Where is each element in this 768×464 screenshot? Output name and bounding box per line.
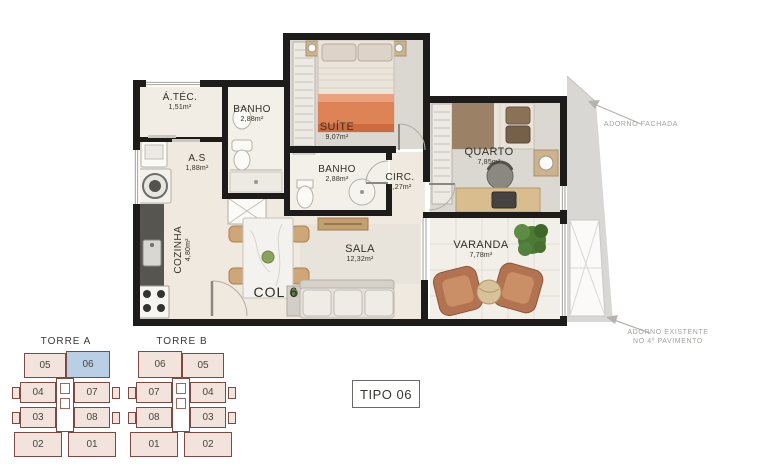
- room-area-suite: 9,07m²: [307, 134, 367, 142]
- room-name-atec: Á.TÉC.: [150, 92, 210, 104]
- floorplan-image: Á.TÉC. 1,51m² BANHO 2,88m² SUÍTE 9,07m² …: [0, 0, 768, 464]
- tower-a-unit-04: 04: [20, 382, 56, 403]
- room-name-varanda: VARANDA: [444, 239, 518, 252]
- tower-a-step: [12, 412, 20, 424]
- room-name-banho1: BANHO: [222, 104, 282, 116]
- room-label-cozinha: COZINHA 4,80m²: [173, 213, 193, 287]
- tower-a-unit-01: 01: [68, 432, 116, 457]
- room-label-banho1: BANHO 2,88m²: [222, 104, 282, 124]
- tower-b-unit-08: 08: [136, 407, 172, 428]
- tower-b-unit-01: 01: [130, 432, 178, 457]
- tower-a-step: [12, 387, 20, 399]
- tower-a-unit-02: 02: [14, 432, 62, 457]
- room-area-varanda: 7,78m²: [444, 252, 518, 260]
- tower-a-diagram: TORRE A 05 06 04 07 03 08 02 01: [10, 336, 122, 461]
- tower-a-body: 05 06 04 07 03 08 02 01: [10, 349, 122, 461]
- tower-a-unit-03: 03: [20, 407, 56, 428]
- room-name-suite: SUÍTE: [307, 121, 367, 134]
- room-area-atec: 1,51m²: [150, 104, 210, 112]
- room-label-atec: Á.TÉC. 1,51m²: [150, 92, 210, 112]
- laundry-fixtures: [139, 141, 171, 203]
- room-area-circ: 1,27m²: [376, 184, 424, 192]
- tower-b-unit-06: 06: [138, 351, 182, 378]
- annotation-existing-line2: NO 4º PAVIMENTO: [618, 337, 718, 346]
- annotation-facade: ADORNO FACHADA: [598, 120, 684, 129]
- facade-adorno-shape: [567, 76, 613, 322]
- room-area-sala: 12,32m²: [330, 256, 390, 264]
- annotation-existing-line1: ADORNO EXISTENTE: [618, 328, 718, 337]
- room-label-quarto: QUARTO 7,85m²: [454, 146, 524, 167]
- room-label-banho2: BANHO 2,88m²: [307, 164, 367, 184]
- tower-b-body: 06 05 07 04 08 03 01 02: [126, 349, 238, 461]
- tower-b-unit-02: 02: [184, 432, 232, 457]
- room-area-banho2: 2,88m²: [307, 176, 367, 184]
- tower-b-step: [128, 412, 136, 424]
- tower-b-step: [228, 387, 236, 399]
- room-name-sala: SALA: [330, 243, 390, 256]
- tower-a-unit-07: 07: [74, 382, 110, 403]
- room-label-varanda: VARANDA 7,78m²: [444, 239, 518, 260]
- tower-a-unit-05: 05: [24, 353, 66, 378]
- tower-a-unit-06: 06: [66, 351, 110, 378]
- tower-a-core: [56, 378, 74, 432]
- room-name-banho2: BANHO: [307, 164, 367, 176]
- tower-b-unit-07: 07: [136, 382, 172, 403]
- tower-a-unit-08: 08: [74, 407, 110, 428]
- room-area-banho1: 2,88m²: [222, 116, 282, 124]
- tower-b-diagram: TORRE B 06 05 07 04 08 03 01 02: [126, 336, 238, 461]
- column-label: COL 6: [246, 284, 306, 300]
- annotation-existing: ADORNO EXISTENTE NO 4º PAVIMENTO: [618, 328, 718, 347]
- tower-a-step: [112, 387, 120, 399]
- tower-b-step: [228, 412, 236, 424]
- room-name-quarto: QUARTO: [454, 146, 524, 159]
- room-label-sala: SALA 12,32m²: [330, 243, 390, 264]
- type-label-box: TIPO 06: [352, 380, 420, 408]
- room-name-as: A.S: [170, 153, 224, 165]
- tower-b-unit-03: 03: [190, 407, 226, 428]
- tower-a-title: TORRE A: [10, 336, 122, 347]
- tower-a-step: [112, 412, 120, 424]
- tower-b-unit-05: 05: [182, 353, 224, 378]
- room-name-circ: CIRC.: [376, 172, 424, 184]
- room-label-suite: SUÍTE 9,07m²: [307, 121, 367, 142]
- room-name-cozinha: COZINHA: [173, 213, 185, 287]
- room-area-quarto: 7,85m²: [454, 159, 524, 167]
- room-label-as: A.S 1,88m²: [170, 153, 224, 173]
- room-area-cozinha: 4,80m²: [185, 213, 193, 287]
- room-label-circ: CIRC. 1,27m²: [376, 172, 424, 192]
- tower-b-title: TORRE B: [126, 336, 238, 347]
- tower-b-core: [172, 378, 190, 432]
- tower-b-unit-04: 04: [190, 382, 226, 403]
- tower-b-step: [128, 387, 136, 399]
- room-area-as: 1,88m²: [170, 165, 224, 173]
